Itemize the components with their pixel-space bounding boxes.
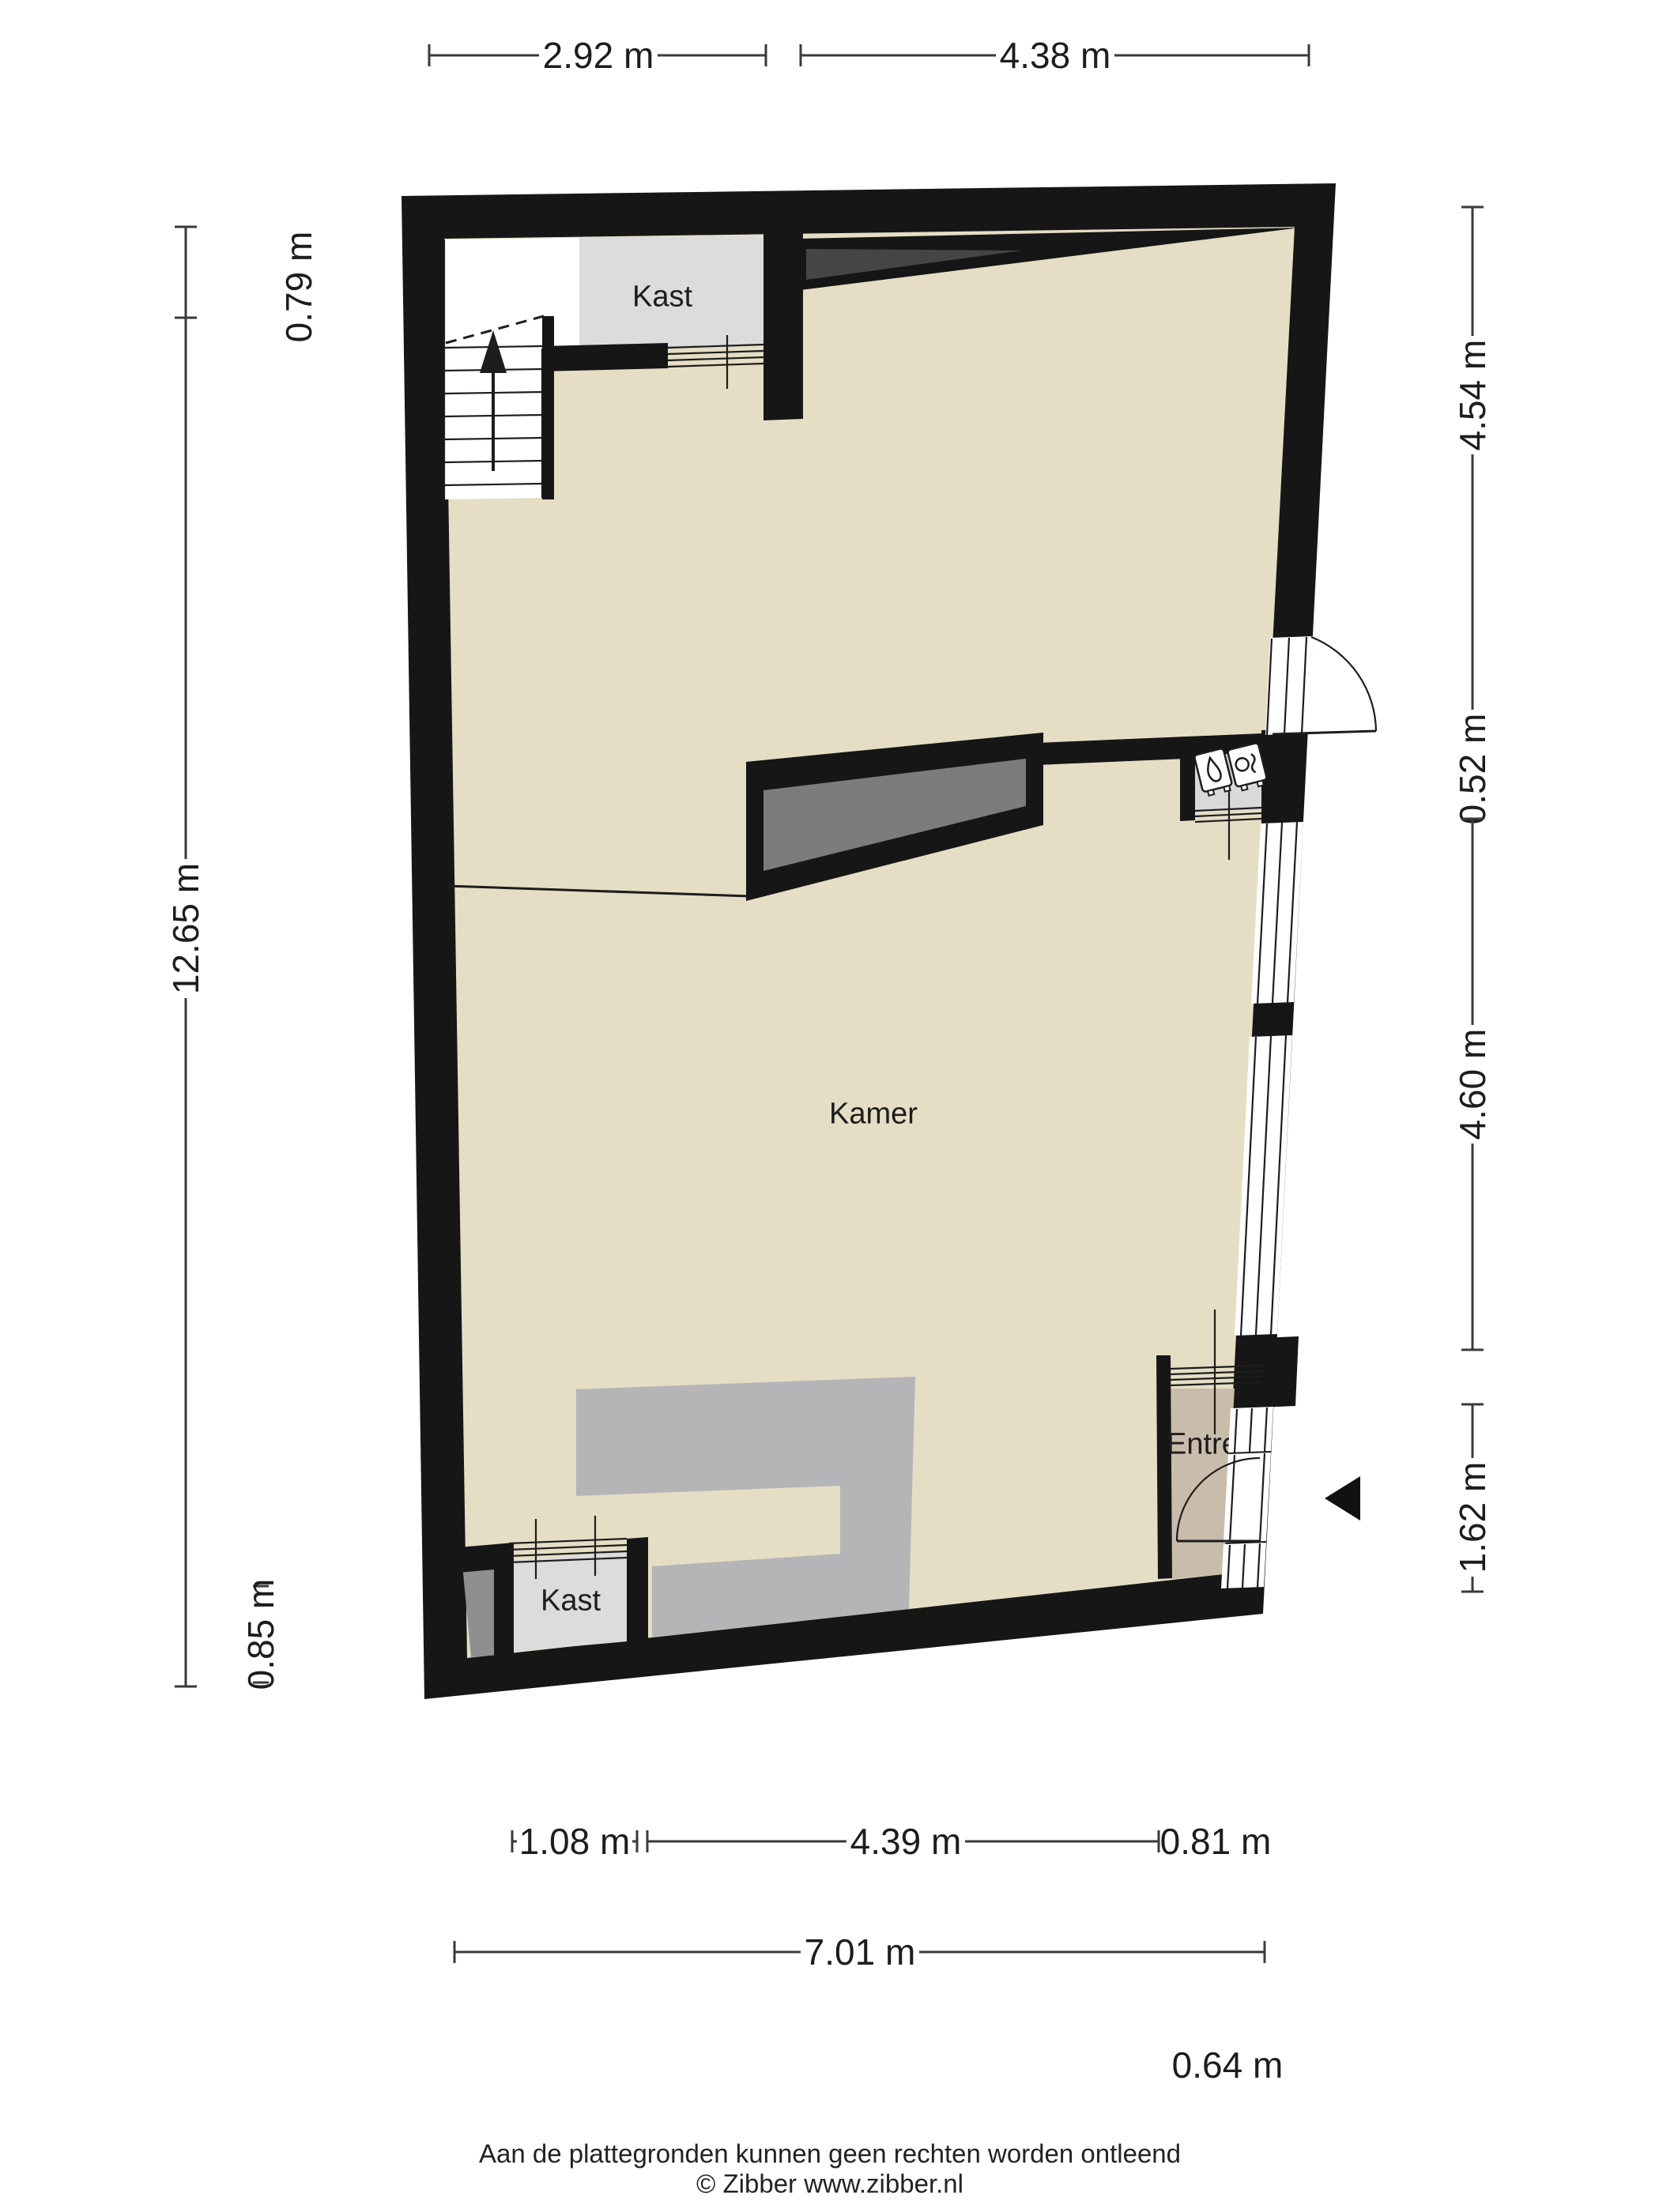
dim-bottom-offset: 0.64 m [1172, 2044, 1284, 2086]
dim-left-1: 0.79 m [278, 232, 319, 343]
dim-top-2: 4.38 m [1000, 35, 1111, 76]
floorplan-page: 2.92 m 4.38 m 0.79 m 12.65 m 0.85 m 4.54… [0, 0, 1659, 2212]
footer-credit: © Zibber www.zibber.nl [696, 2169, 963, 2199]
side-door-swing-arc [1311, 637, 1376, 731]
dim-bottom-2: 4.39 m [850, 1821, 962, 1862]
dimension-lines-bottom: 1.08 m 4.39 m 0.81 m 7.01 m 0.64 m [454, 1821, 1283, 2086]
dim-right-3: 4.60 m [1452, 1029, 1493, 1140]
dim-bottom-total: 7.01 m [805, 1931, 916, 1973]
entree-left-wall [1156, 1355, 1172, 1579]
dimension-lines-left: 0.79 m 12.65 m 0.85 m [165, 227, 319, 1690]
footer: Aan de plattegronden kunnen geen rechten… [479, 2139, 1181, 2199]
dim-left-2: 12.65 m [165, 863, 206, 994]
dimension-lines-right: 4.54 m 0.52 m 4.60 m 1.62 m [1452, 207, 1493, 1592]
dim-left-3: 0.85 m [240, 1579, 281, 1690]
closet-top-label: Kast [632, 280, 692, 313]
entrance-arrow-icon [1325, 1476, 1360, 1521]
closet-bottom-right-wall [627, 1537, 648, 1641]
dim-bottom-3: 0.81 m [1160, 1821, 1272, 1862]
meter-closet-left-wall [1180, 753, 1195, 821]
closet-top-side-wall [764, 233, 803, 420]
dim-bottom-1: 1.08 m [519, 1821, 631, 1862]
side-door [1265, 636, 1376, 735]
kamer-label: Kamer [829, 1097, 918, 1130]
dim-right-4: 1.62 m [1452, 1462, 1493, 1573]
entree-right-wall-chunk [1261, 1336, 1299, 1407]
meter-closet-right-wall [1261, 729, 1304, 825]
footer-disclaimer: Aan de plattegronden kunnen geen rechten… [479, 2139, 1181, 2169]
dim-right-1: 4.54 m [1452, 340, 1493, 451]
closet-bottom-label: Kast [541, 1584, 601, 1617]
window-entree-upper [1228, 1407, 1273, 1453]
dim-right-2: 0.52 m [1452, 714, 1493, 825]
closet-top-wall [542, 343, 668, 371]
dimension-lines-top: 2.92 m 4.38 m [429, 35, 1309, 76]
stair-wall-stub [542, 316, 554, 499]
floorplan-canvas: 2.92 m 4.38 m 0.79 m 12.65 m 0.85 m 4.54… [0, 0, 1659, 2212]
window-entree-lower [1221, 1543, 1266, 1588]
dim-top-1: 2.92 m [543, 35, 654, 76]
